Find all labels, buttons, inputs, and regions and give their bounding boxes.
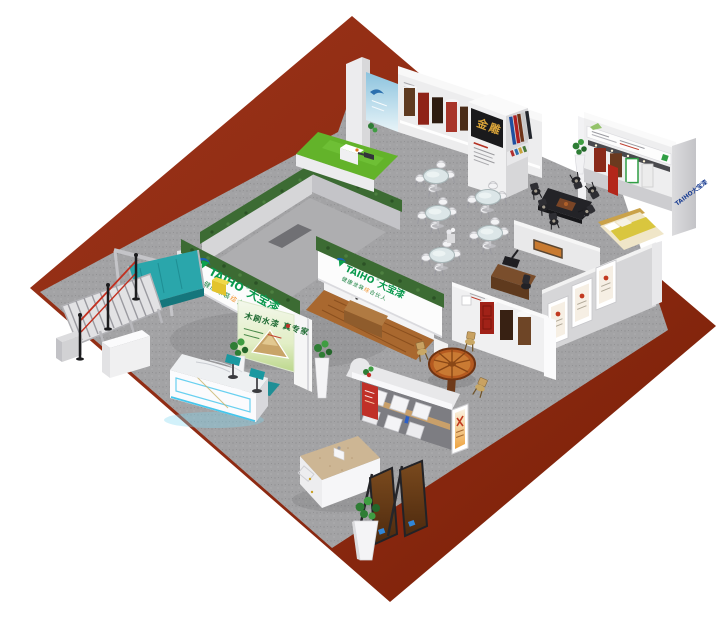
booth-render-canvas: 金雕: [0, 0, 720, 620]
gold-sign-tower: 金雕: [468, 94, 532, 198]
end-lightbox-poster: [452, 404, 468, 454]
red-sign-panel: [362, 382, 378, 420]
booth-render: 金雕: [0, 0, 720, 620]
gray-box: [56, 331, 82, 362]
red-banner: [608, 164, 618, 196]
